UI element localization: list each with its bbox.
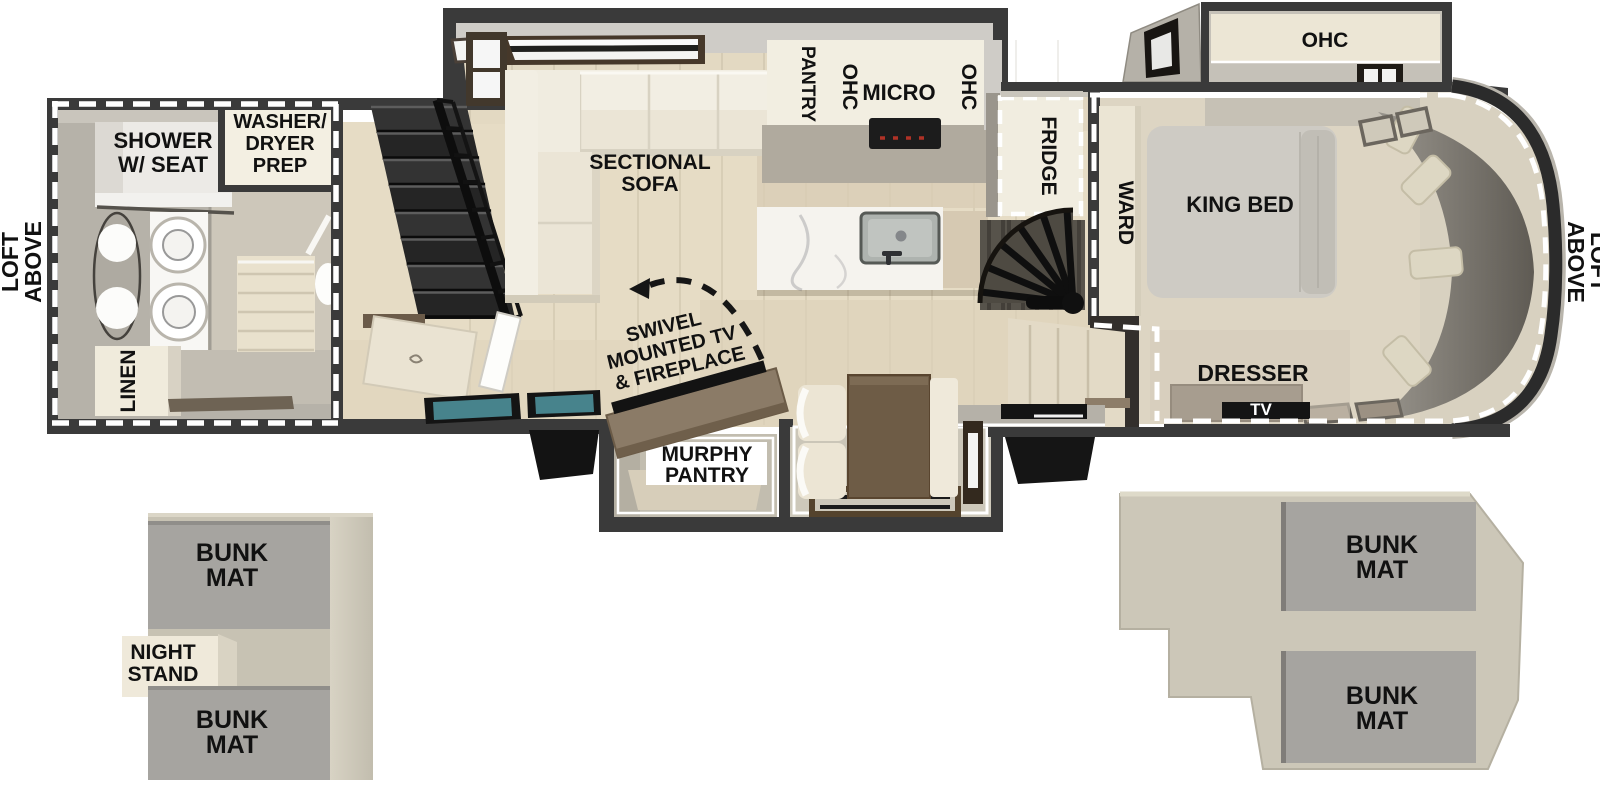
svg-text:MAT: MAT [1356,707,1408,735]
svg-text:OHC: OHC [1302,29,1349,52]
svg-text:OHC: OHC [957,64,980,111]
svg-text:WARD: WARD [1114,181,1137,245]
svg-text:TV: TV [1250,400,1272,419]
svg-text:DRESSER: DRESSER [1197,360,1309,386]
svg-text:BUNK: BUNK [196,539,268,567]
svg-text:W/ SEAT: W/ SEAT [118,152,209,177]
svg-text:MAT: MAT [206,564,258,592]
svg-text:STAND: STAND [128,663,199,686]
svg-text:KING BED: KING BED [1186,192,1294,217]
svg-text:BUNK: BUNK [1346,682,1418,710]
svg-text:LOFTABOVE: LOFTABOVE [1563,221,1600,303]
svg-text:SHOWER: SHOWER [114,128,213,153]
svg-text:PANTRY: PANTRY [665,464,749,487]
svg-text:MAT: MAT [1356,556,1408,584]
svg-text:MURPHY: MURPHY [661,443,752,466]
svg-text:OHC: OHC [838,64,861,111]
svg-text:LOFTABOVE: LOFTABOVE [0,221,46,303]
svg-text:LINEN: LINEN [117,350,140,413]
svg-text:FRIDGE: FRIDGE [1037,116,1060,195]
svg-text:NIGHT: NIGHT [130,641,196,664]
svg-text:WASHER/: WASHER/ [233,111,327,133]
svg-text:PANTRY: PANTRY [797,46,818,122]
svg-text:SOFA: SOFA [621,173,678,196]
svg-text:MICRO: MICRO [862,80,935,105]
svg-text:DRYER: DRYER [245,133,315,155]
svg-text:SECTIONAL: SECTIONAL [589,151,711,174]
svg-text:BUNK: BUNK [1346,531,1418,559]
svg-text:PREP: PREP [253,155,307,177]
svg-text:MAT: MAT [206,731,258,759]
svg-text:BUNK: BUNK [196,706,268,734]
